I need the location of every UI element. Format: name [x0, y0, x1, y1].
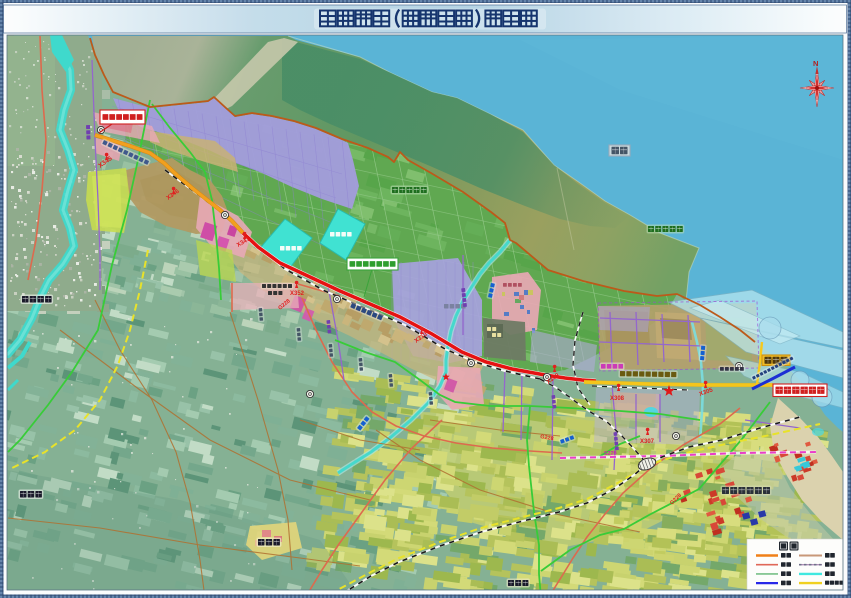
svg-text:S226: S226: [604, 451, 617, 457]
svg-text:X352: X352: [290, 291, 305, 297]
svg-text:N: N: [813, 59, 818, 68]
svg-text:X307: X307: [640, 439, 655, 445]
svg-text:X308: X308: [610, 396, 625, 402]
